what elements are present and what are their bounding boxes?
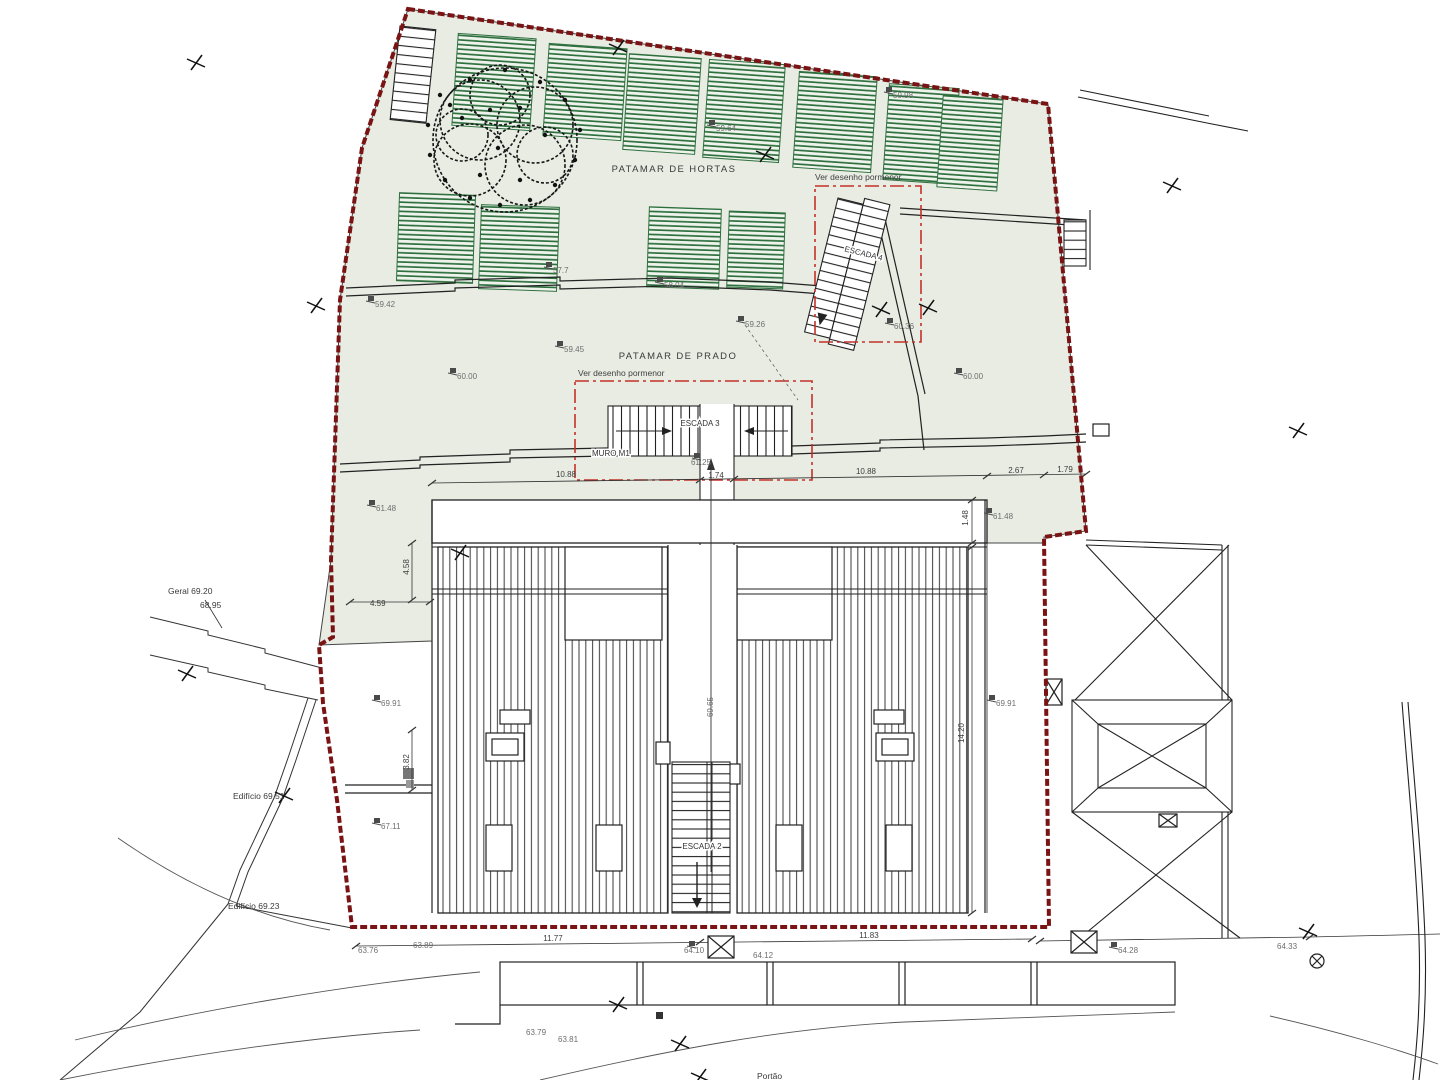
spot-elevation: 64.12: [753, 951, 774, 960]
dimension-label: 14.20: [957, 722, 966, 743]
spot-elevation: 63.76: [358, 946, 379, 955]
spot-elevation: 59.26: [745, 320, 766, 329]
detail-note-mid: Ver desenho pormenor: [578, 368, 665, 378]
label-edificio-a: Edifício 69.51: [233, 791, 285, 801]
spot-elevation: 64.10: [684, 946, 705, 955]
spot-elevation: 64.33: [1277, 942, 1298, 951]
spot-elevation: 60.00: [963, 372, 984, 381]
right-neighbour-roof: [1064, 90, 1426, 1080]
dimension-label: 11.77: [543, 934, 563, 943]
spot-elevation: 60.36: [894, 322, 915, 331]
left-parcels: [60, 600, 352, 1080]
spot-elevation: 59.42: [375, 300, 396, 309]
spot-elevation: 61.48: [993, 512, 1014, 521]
spot-elevation: 69.65: [706, 696, 715, 717]
spot-elevation: 59.64: [716, 124, 737, 133]
street-structure: [455, 962, 1175, 1024]
label-escada-3: ESCADA 3: [680, 419, 720, 428]
left-roof-opening: [565, 547, 662, 640]
spot-elevation: 64.28: [1118, 946, 1139, 955]
label-muro-m1: MURO M1: [592, 449, 630, 458]
label-edificio-b: Edifício 69.23: [228, 901, 280, 911]
dimension-label: 2.67: [1008, 466, 1024, 475]
label-escada-2: ESCADA 2: [682, 842, 722, 851]
spot-elevation: 57.7: [553, 266, 569, 275]
area-label-hortas: PATAMAR DE HORTAS: [612, 164, 737, 175]
area-label-prado: PATAMAR DE PRADO: [619, 351, 737, 362]
spot-elevation: 61.25: [691, 458, 712, 467]
spot-elevation: 58.04: [664, 281, 685, 290]
label-portao: Portão: [757, 1071, 782, 1080]
dimension-label: 3.82: [402, 754, 411, 770]
dimension-label: 1.79: [1057, 465, 1073, 474]
spot-elevation: 60.00: [457, 372, 478, 381]
right-roof-opening: [737, 547, 832, 640]
spot-elevation: 63.79: [526, 1028, 547, 1037]
spot-elevation: 63.81: [558, 1035, 579, 1044]
detail-note-top: Ver desenho pormenor: [815, 172, 902, 182]
stair-escada-2: [672, 762, 730, 913]
label-geral: Geral 69.20: [168, 586, 213, 596]
dimension-label: 1.48: [961, 510, 970, 526]
spot-elevation: 69.91: [381, 699, 402, 708]
dimension-label: 1.74: [708, 471, 724, 480]
dimension-label: 10.88: [556, 470, 577, 479]
spot-elevation: 63.89: [413, 941, 434, 950]
upper-terrace-band: [432, 500, 987, 543]
dimension-label: 4.58: [402, 559, 411, 575]
dimension-label: 10.88: [856, 467, 877, 476]
label-geral-alt: 68.95: [200, 600, 222, 610]
dimension-label: 4.59: [370, 599, 386, 608]
dimension-label: 11.83: [859, 931, 879, 940]
spot-elevation: 59.98: [893, 91, 914, 100]
site-plan-page: PATAMAR DE HORTAS PATAMAR DE PRADO Ver d…: [0, 0, 1440, 1080]
spot-elevation: 67.11: [381, 822, 401, 831]
spot-elevation: 61.48: [376, 504, 397, 513]
spot-elevation: 59.45: [564, 345, 585, 354]
site-plan-drawing: PATAMAR DE HORTAS PATAMAR DE PRADO Ver d…: [0, 0, 1440, 1080]
spot-elevation: 69.91: [996, 699, 1017, 708]
